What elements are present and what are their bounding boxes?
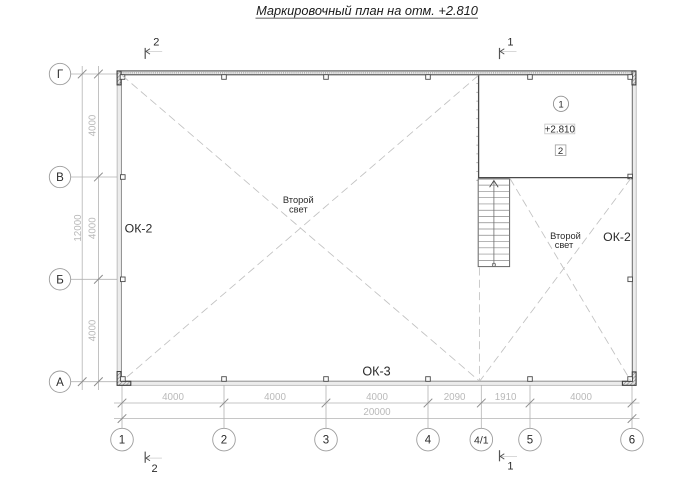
- svg-text:20000: 20000: [363, 407, 391, 418]
- svg-text:2: 2: [153, 36, 159, 48]
- svg-text:свет: свет: [289, 205, 308, 215]
- svg-text:ОК-2: ОК-2: [125, 221, 153, 235]
- svg-text:2090: 2090: [444, 392, 466, 403]
- svg-text:3: 3: [323, 435, 329, 447]
- svg-text:4000: 4000: [366, 392, 388, 403]
- svg-text:12000: 12000: [73, 214, 84, 242]
- svg-text:5: 5: [527, 435, 533, 447]
- svg-text:1: 1: [119, 435, 125, 447]
- svg-text:4000: 4000: [570, 392, 592, 403]
- svg-text:4/1: 4/1: [474, 435, 489, 447]
- svg-text:4000: 4000: [88, 319, 99, 341]
- svg-text:Второй: Второй: [283, 195, 314, 205]
- svg-text:В: В: [56, 172, 64, 184]
- svg-text:4000: 4000: [264, 392, 286, 403]
- svg-text:+2.810: +2.810: [545, 124, 576, 135]
- svg-text:Маркировочный план на отм. +2.: Маркировочный план на отм. +2.810: [256, 3, 479, 18]
- svg-text:4000: 4000: [88, 217, 99, 239]
- svg-text:4000: 4000: [162, 392, 184, 403]
- svg-text:6: 6: [629, 435, 635, 447]
- svg-text:1910: 1910: [495, 392, 517, 403]
- svg-text:А: А: [56, 377, 64, 389]
- svg-text:4000: 4000: [88, 114, 99, 136]
- svg-text:1: 1: [558, 99, 563, 110]
- svg-text:2: 2: [152, 463, 158, 474]
- svg-text:4: 4: [425, 435, 432, 447]
- svg-text:свет: свет: [555, 240, 574, 250]
- svg-text:Б: Б: [56, 274, 64, 286]
- svg-text:Г: Г: [57, 69, 64, 81]
- svg-text:2: 2: [558, 146, 563, 157]
- svg-text:ОК-3: ОК-3: [362, 364, 390, 378]
- svg-text:1: 1: [507, 461, 513, 473]
- svg-text:1: 1: [507, 37, 513, 49]
- svg-text:2: 2: [221, 435, 227, 447]
- svg-text:ОК-2: ОК-2: [603, 230, 631, 244]
